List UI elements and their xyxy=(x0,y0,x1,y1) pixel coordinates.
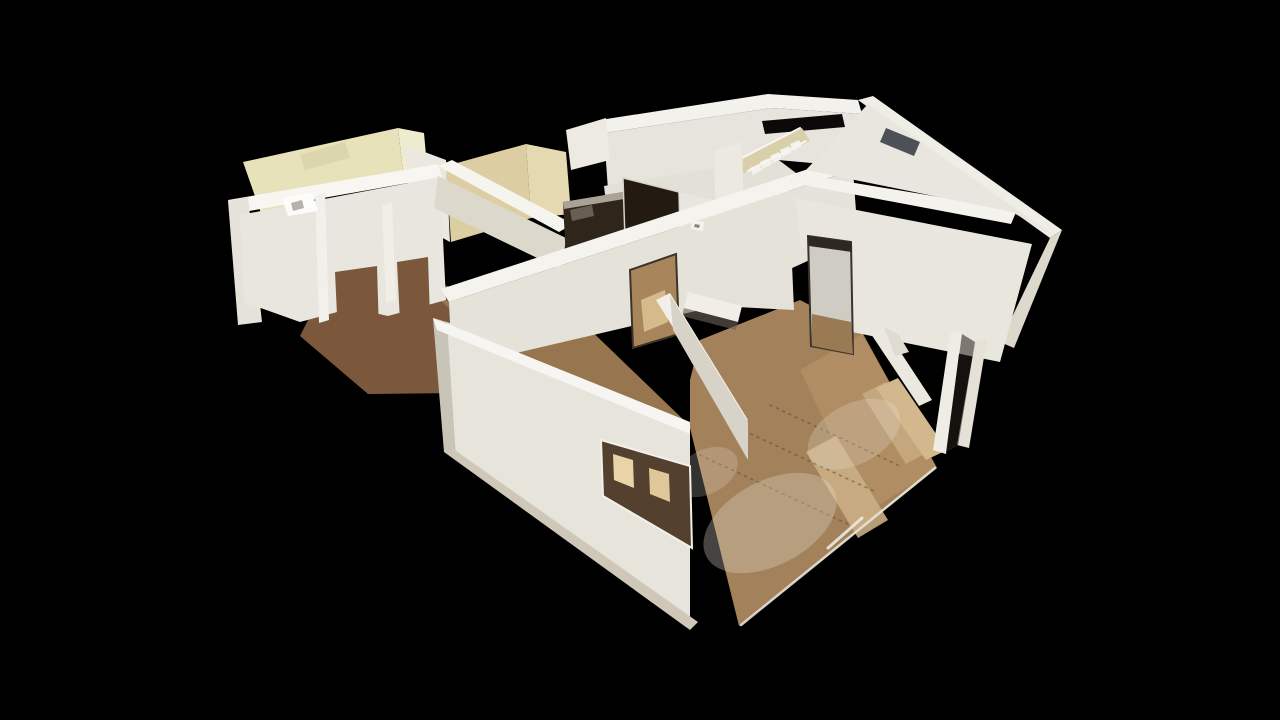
dollhouse-3d-view[interactable] xyxy=(0,0,1280,720)
doorway-left-2 xyxy=(397,257,430,322)
viewer-background xyxy=(0,0,1280,720)
wall-kitchen-top-white xyxy=(566,118,610,170)
doorway-left-1 xyxy=(335,266,379,336)
